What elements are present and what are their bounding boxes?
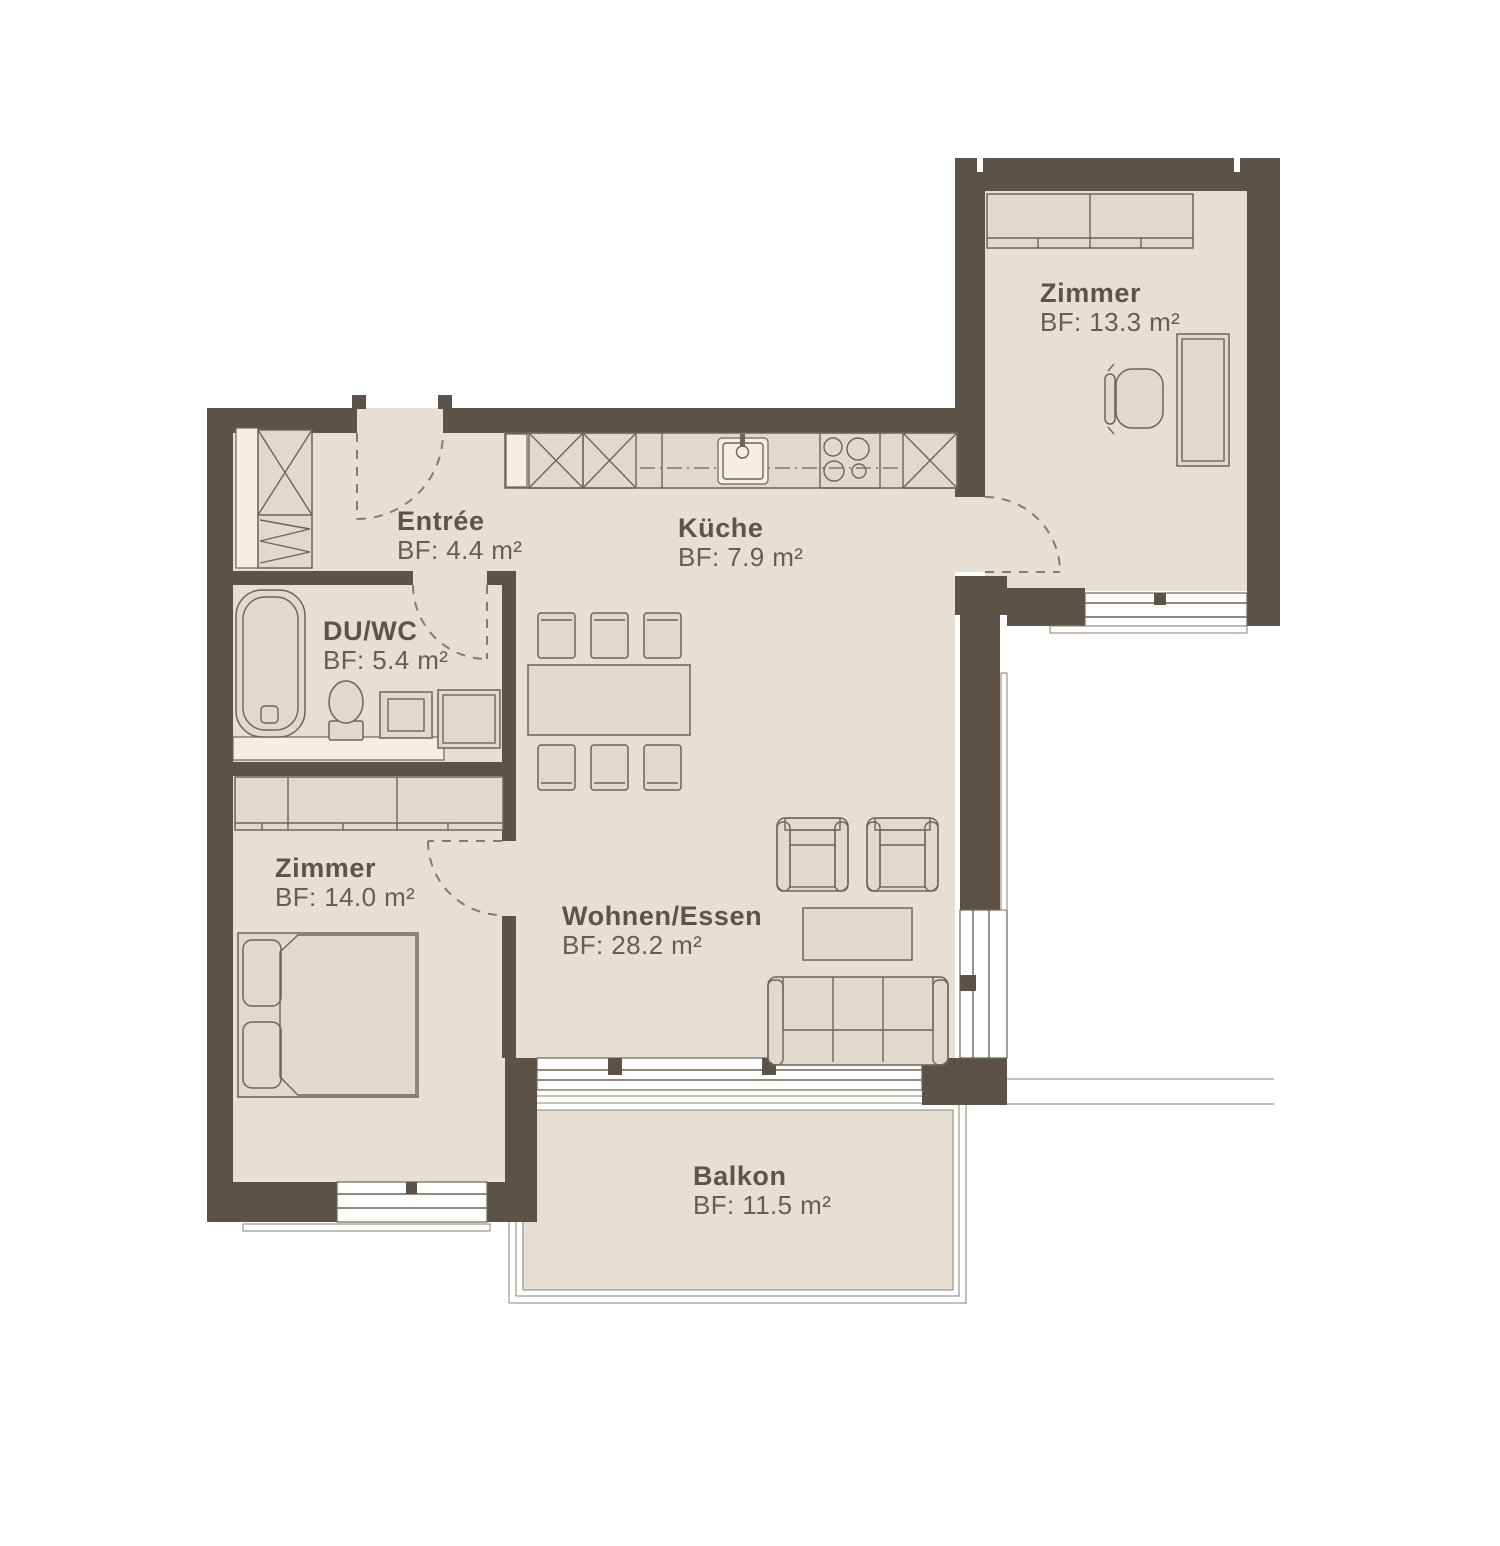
room-title: Entrée — [397, 506, 485, 536]
entry-door-floor — [357, 408, 443, 433]
room-area: BF: 5.4 m² — [323, 645, 448, 675]
pillow — [243, 1022, 281, 1088]
room-title: Balkon — [693, 1161, 787, 1191]
room-area: BF: 4.4 m² — [397, 535, 522, 565]
passage-floor — [955, 497, 985, 572]
desk — [1177, 334, 1229, 466]
coffee-table — [803, 908, 912, 960]
room-title: Zimmer — [1040, 278, 1141, 308]
wardrobe — [235, 777, 503, 830]
room-area: BF: 28.2 m² — [562, 930, 702, 960]
dining-chair — [644, 613, 681, 658]
kitchen-sink — [718, 434, 768, 484]
washing-machine — [438, 690, 500, 748]
room-area: BF: 13.3 m² — [1040, 307, 1180, 337]
neighbor-balcony-lines — [1007, 1079, 1274, 1104]
sofa — [768, 977, 948, 1065]
armchair — [777, 818, 848, 891]
dining-chair — [591, 613, 628, 658]
room-area: BF: 7.9 m² — [678, 542, 803, 572]
wardrobe — [987, 194, 1193, 248]
bathtub — [236, 590, 305, 737]
floor-plan-drawing: Zimmer BF: 13.3 m² Entrée BF: 4.4 m² Küc… — [0, 0, 1500, 1546]
dining-chair — [538, 745, 575, 790]
dining-chair — [644, 745, 681, 790]
toilet — [329, 681, 363, 740]
armchair — [867, 818, 938, 891]
room-title: Küche — [678, 513, 764, 543]
bathroom-sink — [380, 692, 432, 738]
room-area: BF: 11.5 m² — [693, 1190, 831, 1220]
dining-chair — [591, 745, 628, 790]
room-area: BF: 14.0 m² — [275, 882, 415, 912]
pillow — [243, 940, 281, 1006]
floor-plan: Zimmer BF: 13.3 m² Entrée BF: 4.4 m² Küc… — [0, 0, 1500, 1546]
dining-chair — [538, 613, 575, 658]
room-title: DU/WC — [323, 616, 417, 646]
dining-table — [528, 665, 690, 735]
kitchen-counter — [505, 433, 957, 488]
double-bed — [238, 933, 418, 1097]
room-title: Wohnen/Essen — [562, 901, 762, 931]
room-title: Zimmer — [275, 853, 376, 883]
tall-cabinet — [506, 434, 527, 487]
entree-closet — [236, 428, 312, 568]
dining-set — [528, 613, 690, 790]
